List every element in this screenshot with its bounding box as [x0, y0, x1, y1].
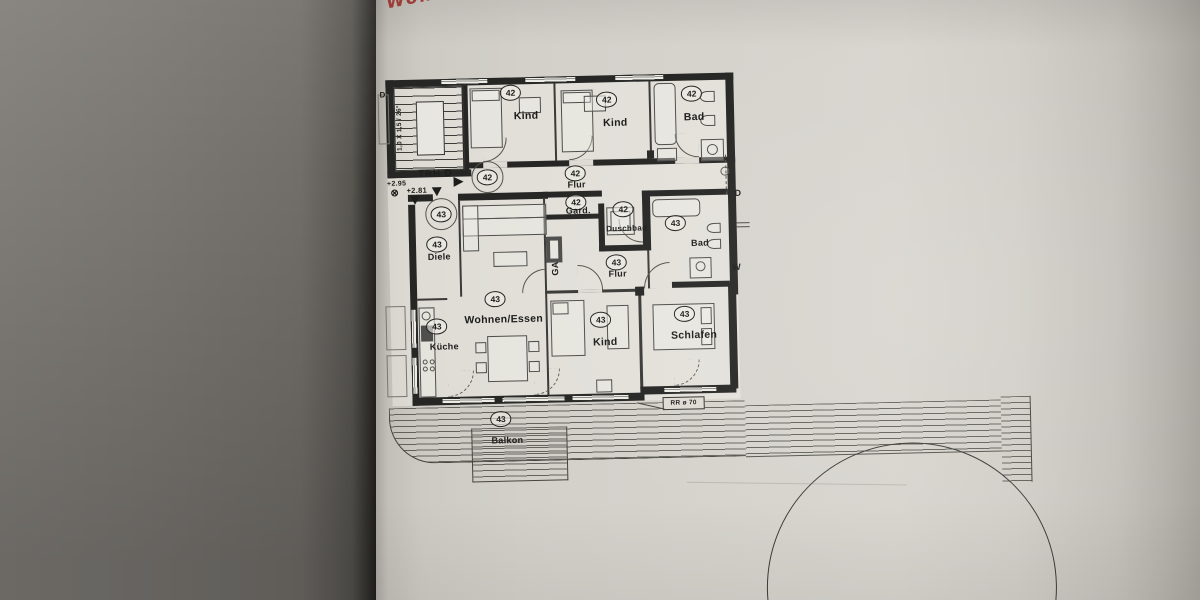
page-shading [376, 0, 1200, 600]
table-surface-shading [0, 0, 376, 600]
photo-of-floorplan-page: 1,0 X 1,5 / 26° [0, 0, 1200, 600]
